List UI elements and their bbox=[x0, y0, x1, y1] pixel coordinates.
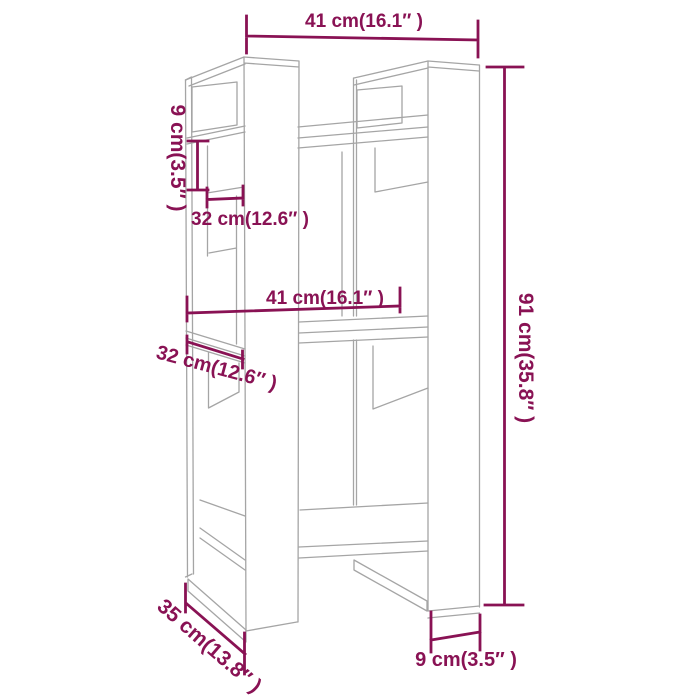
dimension-label: 41 cm(16.1″ ) bbox=[305, 11, 423, 32]
dimension-line bbox=[188, 141, 208, 190]
dimension-label: 41 cm(16.1″ ) bbox=[266, 288, 384, 309]
lower-right-shelf-base-outline bbox=[299, 503, 428, 611]
dimension-bottom-left-depth: 35 cm(13.8″ ) bbox=[153, 584, 266, 698]
dimension-line bbox=[207, 186, 243, 207]
diagram-canvas: 41 cm(16.1″ ) 9 cm(3.5″ ) 32 cm(12.6″ ) … bbox=[0, 0, 700, 700]
right-side-panel-outline bbox=[428, 61, 480, 618]
center-panel-outline bbox=[244, 57, 299, 631]
dimension-bottom-right-width: 9 cm(3.5″ ) bbox=[415, 612, 517, 671]
dimension-label: 9 cm(3.5″ ) bbox=[415, 649, 517, 671]
dimension-label: 32 cm(12.6″ ) bbox=[191, 209, 309, 230]
dimension-upper-left-shelf-gap: 9 cm(3.5″ ) bbox=[166, 105, 208, 212]
dimension-middle-width: 41 cm(16.1″ ) bbox=[187, 288, 400, 321]
dimension-middle-left-depth: 32 cm(12.6″ ) bbox=[154, 336, 280, 395]
dimension-line bbox=[431, 612, 480, 652]
upper-right-shelves-outline bbox=[298, 61, 428, 192]
dimension-label: 9 cm(3.5″ ) bbox=[166, 105, 189, 212]
furniture-dimension-diagram: 41 cm(16.1″ ) 9 cm(3.5″ ) 32 cm(12.6″ ) … bbox=[0, 0, 700, 700]
dimension-top-width: 41 cm(16.1″ ) bbox=[247, 11, 479, 57]
middle-right-shelf-outline bbox=[299, 316, 428, 409]
dimension-overall-height: 91 cm(35.8″ ) bbox=[485, 67, 537, 605]
dimension-label: 91 cm(35.8″ ) bbox=[514, 293, 537, 423]
furniture-outline bbox=[186, 57, 480, 642]
